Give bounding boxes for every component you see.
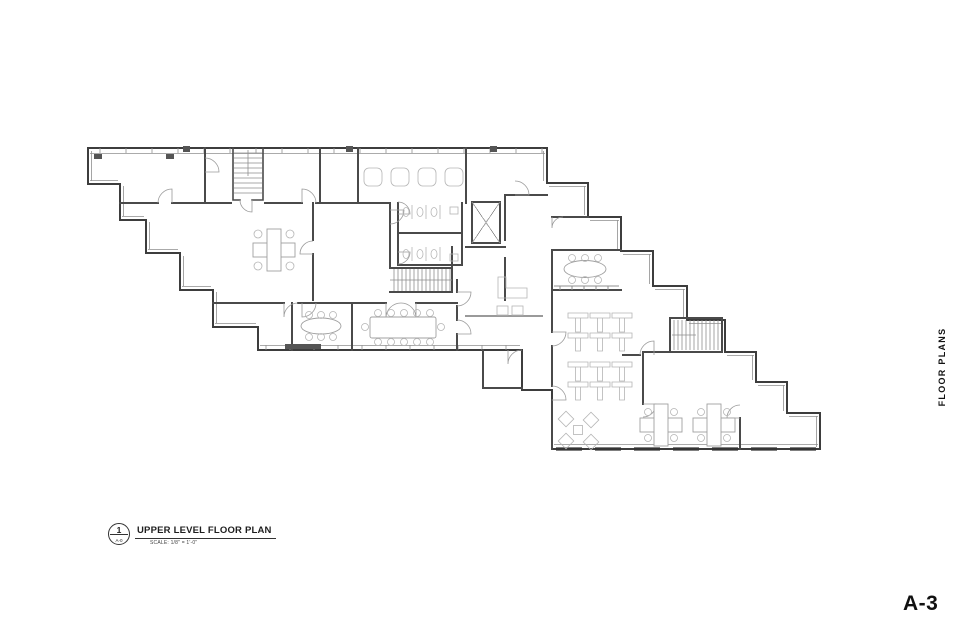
t-desk-cluster-2	[568, 362, 632, 400]
t-desk-cluster-1	[568, 313, 632, 351]
detail-sheet-ref: A-0	[109, 538, 129, 543]
plan-scale: SCALE: 1/8" = 1'-0"	[150, 540, 197, 546]
stair-treads	[233, 148, 718, 350]
floor-plan-drawing	[0, 0, 960, 640]
conference-table-long	[362, 310, 445, 346]
floor-plan-svg	[0, 0, 960, 640]
cruciform-desk-left	[253, 229, 295, 271]
cruciform-desk-right-1	[640, 404, 682, 446]
lounge-diamonds	[558, 411, 599, 450]
sheet-number: A-3	[903, 592, 938, 616]
break-tables	[364, 168, 463, 186]
conference-table-oval-right	[564, 255, 606, 284]
drawing-sheet: { "sheet": { "side_label": "FLOOR PLANS"…	[0, 0, 960, 640]
window-glazing-lines	[90, 146, 818, 449]
sheet-side-label: FLOOR PLANS	[937, 326, 947, 408]
door-swings	[158, 158, 740, 418]
detail-bubble: 1 A-0	[108, 523, 130, 545]
reception-counter	[498, 277, 527, 298]
detail-bubble-divider	[110, 534, 128, 535]
interior-walls-left-wing	[120, 148, 547, 388]
cruciform-desk-right-2	[693, 404, 735, 446]
credenza	[285, 344, 321, 349]
plan-title: UPPER LEVEL FLOOR PLAN	[135, 525, 276, 539]
